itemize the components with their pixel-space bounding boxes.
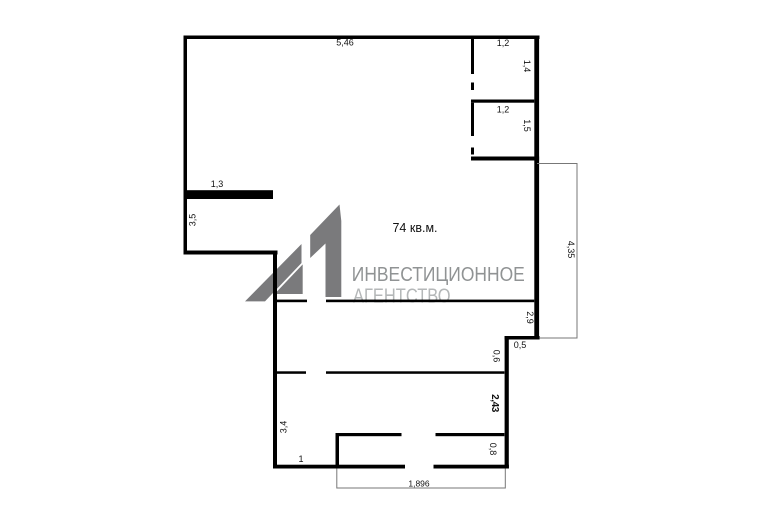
svg-text:АГЕНТСТВО: АГЕНТСТВО: [353, 284, 451, 307]
svg-text:ИНВЕСТИЦИОННОЕ: ИНВЕСТИЦИОННОЕ: [352, 263, 525, 286]
svg-text:1,5: 1,5: [522, 119, 532, 132]
svg-text:3,4: 3,4: [279, 421, 289, 434]
svg-text:1,896: 1,896: [408, 479, 430, 489]
svg-text:74 кв.м.: 74 кв.м.: [392, 221, 437, 235]
svg-text:2,43: 2,43: [489, 394, 500, 413]
svg-text:1,2: 1,2: [497, 38, 510, 48]
svg-text:1: 1: [298, 454, 303, 464]
svg-text:3,5: 3,5: [188, 214, 198, 227]
svg-text:1,2: 1,2: [497, 105, 510, 115]
svg-text:0,6: 0,6: [492, 350, 502, 363]
svg-text:4,35: 4,35: [566, 241, 576, 259]
svg-text:1,3: 1,3: [211, 179, 224, 189]
svg-text:1,4: 1,4: [522, 60, 532, 73]
svg-text:2,9: 2,9: [525, 311, 535, 324]
svg-text:5,46: 5,46: [336, 38, 354, 48]
svg-text:0,8: 0,8: [488, 443, 498, 456]
svg-text:0,5: 0,5: [514, 340, 527, 350]
